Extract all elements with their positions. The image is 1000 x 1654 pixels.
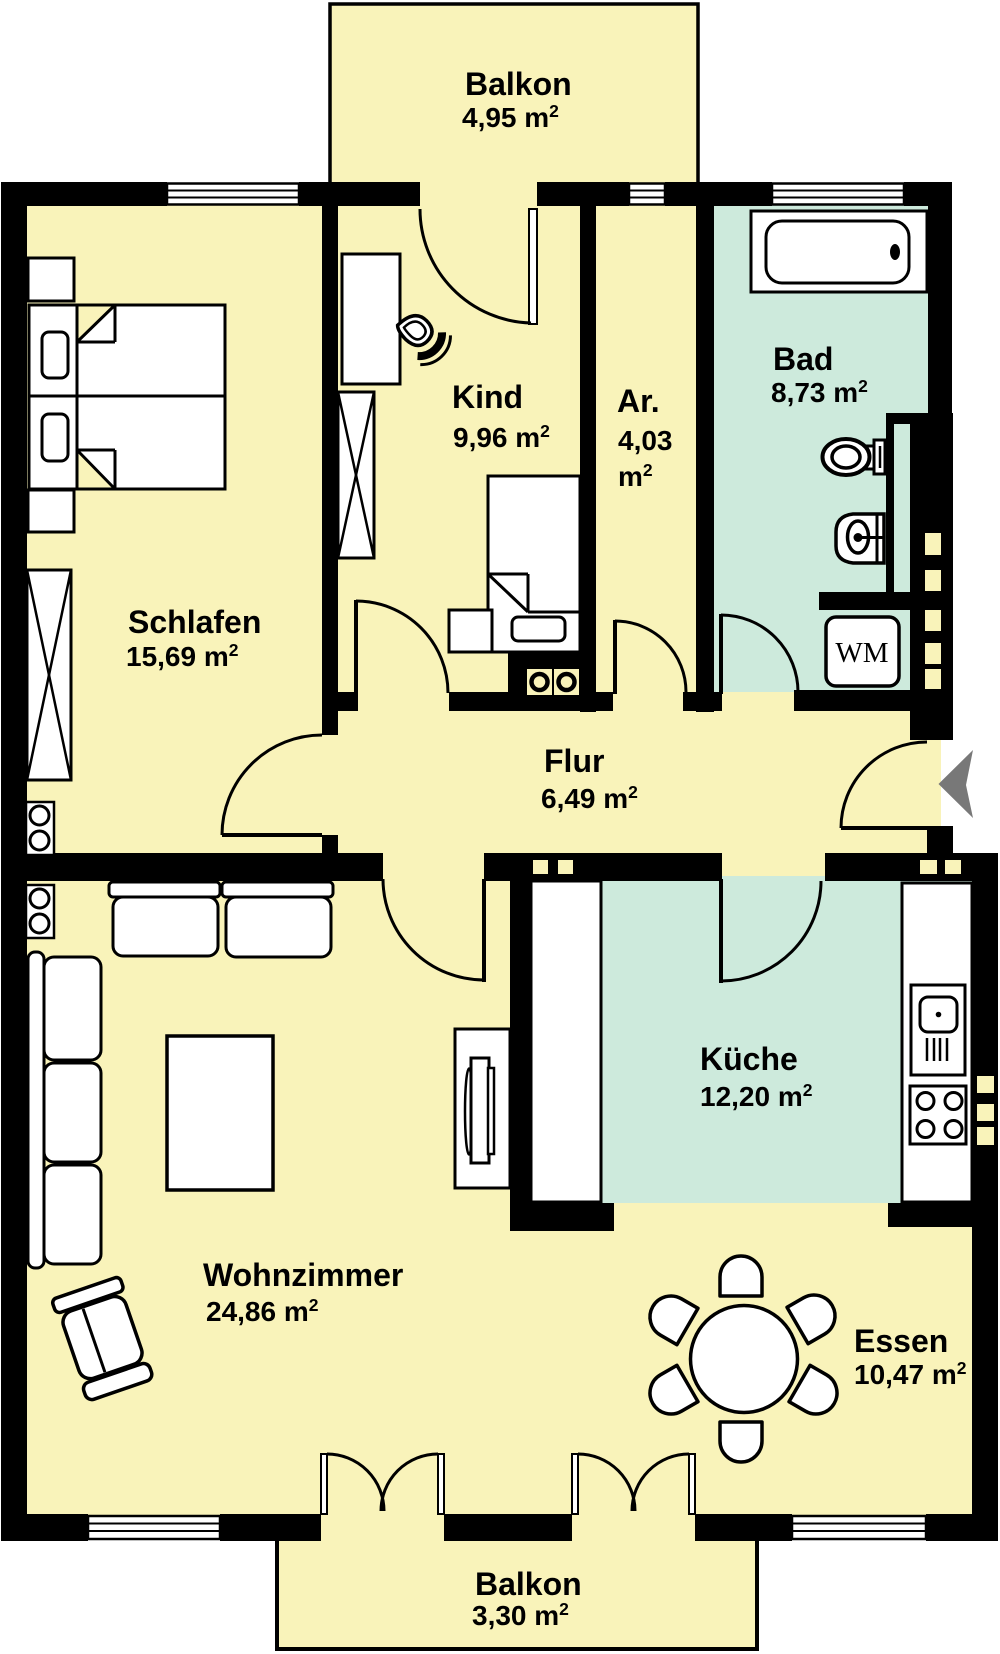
svg-text:Essen: Essen	[854, 1323, 948, 1359]
svg-text:12,20 m2: 12,20 m2	[700, 1080, 813, 1112]
svg-text:Balkon: Balkon	[465, 66, 572, 102]
svg-text:15,69 m2: 15,69 m2	[126, 640, 239, 672]
svg-text:Ar.: Ar.	[617, 383, 660, 419]
svg-text:Flur: Flur	[544, 743, 604, 779]
svg-text:Balkon: Balkon	[475, 1566, 582, 1602]
svg-text:3,30 m2: 3,30 m2	[472, 1599, 569, 1631]
svg-text:4,03: 4,03	[618, 425, 673, 456]
svg-text:24,86 m2: 24,86 m2	[206, 1295, 319, 1327]
svg-text:Schlafen: Schlafen	[128, 604, 261, 640]
svg-text:WM: WM	[835, 637, 888, 669]
svg-text:6,49 m2: 6,49 m2	[541, 782, 638, 814]
svg-text:9,96 m2: 9,96 m2	[453, 421, 550, 453]
svg-text:8,73 m2: 8,73 m2	[771, 376, 868, 408]
svg-text:10,47 m2: 10,47 m2	[854, 1358, 967, 1390]
svg-text:Wohnzimmer: Wohnzimmer	[203, 1257, 403, 1293]
svg-text:Küche: Küche	[700, 1041, 798, 1077]
svg-text:Kind: Kind	[452, 379, 523, 415]
svg-text:4,95 m2: 4,95 m2	[462, 101, 559, 133]
svg-text:Bad: Bad	[773, 341, 833, 377]
